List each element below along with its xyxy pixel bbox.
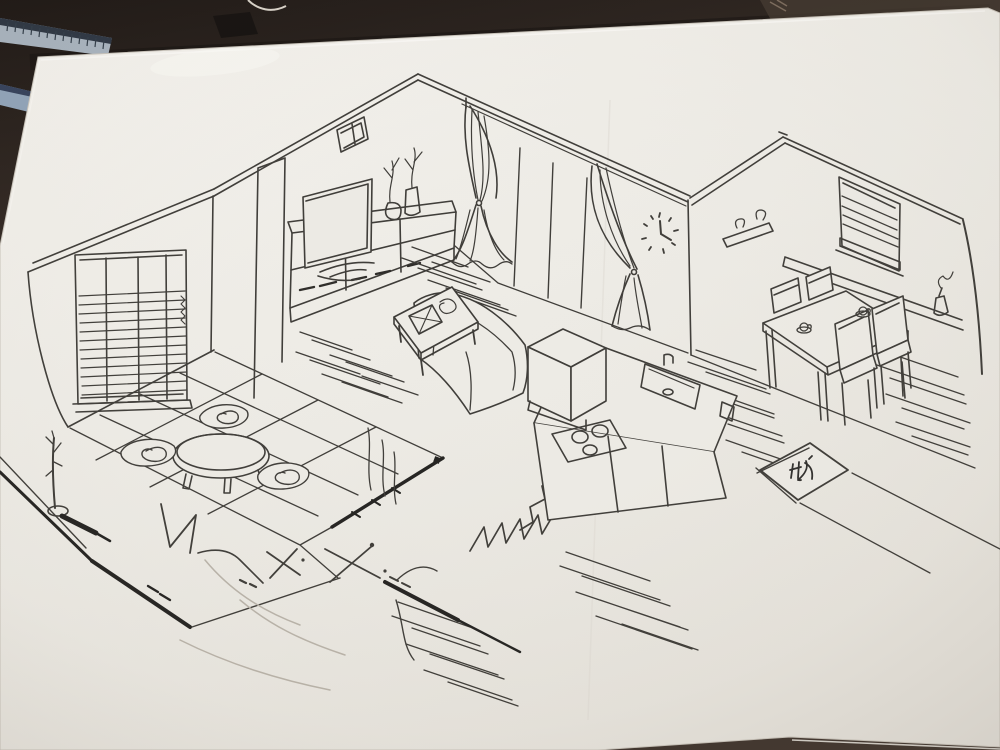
sketch-photo-canvas [0,0,1000,750]
photo-of-room-sketch [0,0,1000,750]
photo-vignette [0,0,1000,750]
